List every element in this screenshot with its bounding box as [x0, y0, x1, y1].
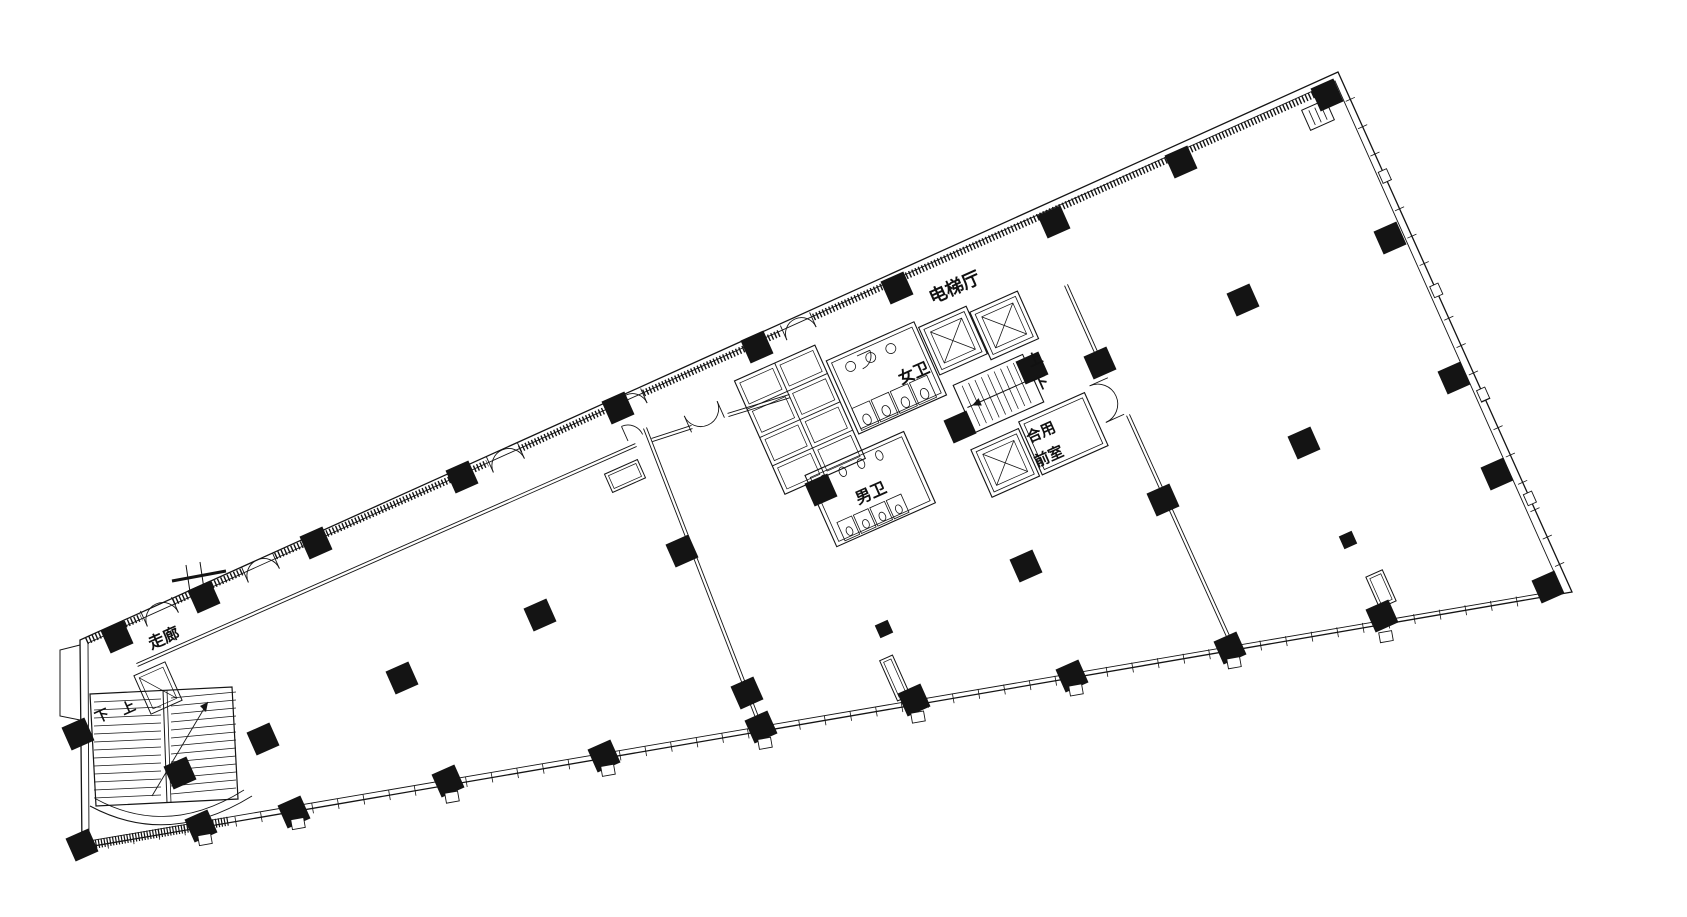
interior-partitions	[136, 284, 1233, 725]
exterior-stair-block	[90, 662, 252, 825]
architectural-floor-plan: 电梯厅 女卫 男卫 合用 前室 上 下 走廊 下 上	[0, 0, 1687, 917]
service-core	[734, 253, 1108, 574]
facade-mullion-ticks	[107, 97, 1564, 848]
label-womens-wc: 女卫	[895, 358, 932, 388]
label-elevator-hall: 电梯厅	[925, 266, 983, 308]
facade-panel-joints	[198, 169, 1537, 846]
label-mens-wc: 男卫	[852, 478, 889, 508]
door-swings	[140, 312, 1124, 626]
curtain-wall-hatch-band	[86, 91, 1321, 641]
building-outline	[60, 72, 1572, 848]
label-bl-stair-up: 上	[119, 698, 138, 718]
floor-plan-canvas: 电梯厅 女卫 男卫 合用 前室 上 下 走廊 下 上	[0, 0, 1687, 917]
wall-stubs	[604, 460, 1396, 701]
structural-columns	[62, 79, 1564, 861]
